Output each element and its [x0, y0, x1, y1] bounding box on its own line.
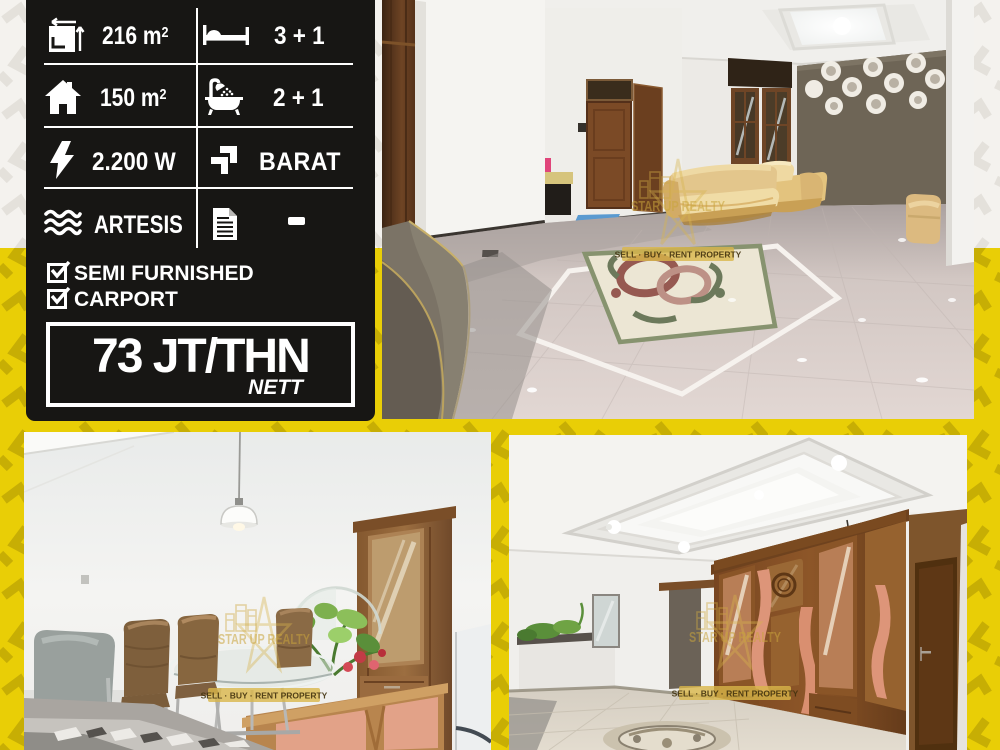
svg-text:STAR UP REALTY: STAR UP REALTY [631, 198, 725, 215]
svg-text:SELL · BUY · RENT PROPERTY: SELL · BUY · RENT PROPERTY [615, 250, 742, 260]
svg-text:STAR UP REALTY: STAR UP REALTY [689, 629, 781, 646]
svg-text:STAR UP REALTY: STAR UP REALTY [218, 631, 310, 648]
svg-text:SELL · BUY · RENT PROPERTY: SELL · BUY · RENT PROPERTY [201, 691, 328, 701]
svg-text:SELL · BUY · RENT PROPERTY: SELL · BUY · RENT PROPERTY [672, 689, 799, 699]
